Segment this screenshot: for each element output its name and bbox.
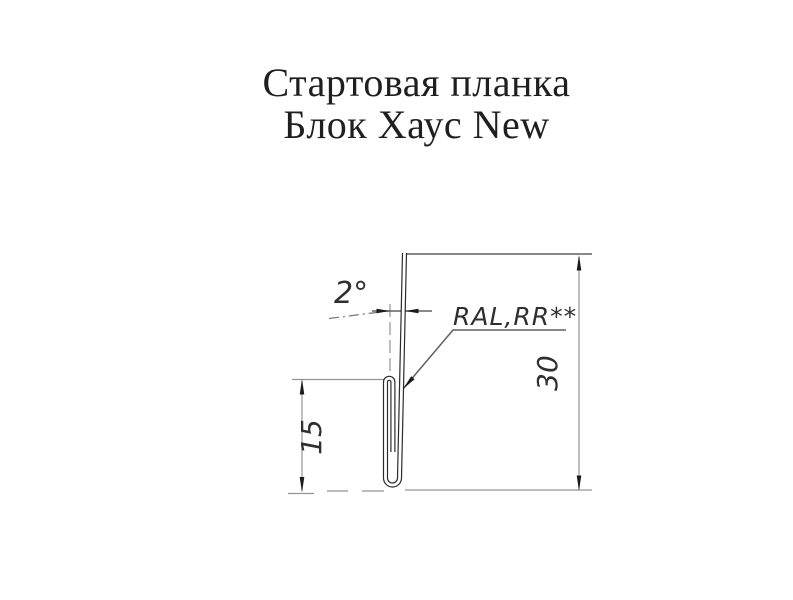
arrow-angle-left — [377, 309, 391, 314]
annotation-texts: 2° RAL,RR** 15 30 — [295, 276, 577, 455]
arrow-15-top — [300, 379, 305, 395]
arrow-15-bottom — [300, 477, 305, 493]
arrow-angle-right — [405, 309, 419, 314]
angle-dashdot-line — [329, 312, 380, 319]
profile-drawing: 2° RAL,RR** 15 30 — [0, 0, 793, 600]
arrow-leader-coating — [403, 376, 415, 389]
arrow-30-top — [577, 255, 582, 271]
drawing-page: Стартовая планка Блок Хаус New — [0, 0, 793, 600]
profile-height-dimension-label: 30 — [531, 355, 564, 391]
coating-label: RAL,RR** — [453, 302, 577, 331]
flange-height-dimension-label: 15 — [295, 419, 328, 455]
arrow-30-bottom — [577, 476, 582, 492]
angle-label: 2° — [334, 276, 368, 311]
